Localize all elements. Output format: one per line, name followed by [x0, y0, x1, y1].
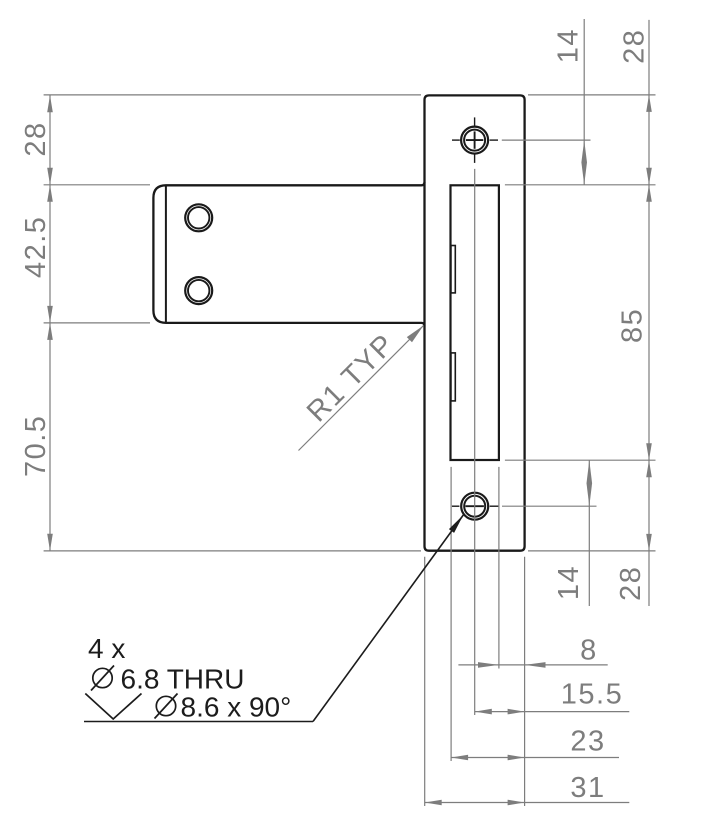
svg-text:42.5: 42.5	[20, 216, 52, 278]
svg-text:4 x: 4 x	[88, 633, 125, 664]
svg-text:28: 28	[20, 121, 52, 156]
svg-text:14: 14	[553, 565, 585, 600]
svg-text:14: 14	[552, 28, 584, 63]
svg-text:6.8 THRU: 6.8 THRU	[121, 664, 245, 695]
svg-text:31: 31	[570, 772, 605, 804]
svg-text:23: 23	[570, 726, 605, 758]
svg-text:85: 85	[617, 308, 649, 343]
svg-text:28: 28	[619, 29, 651, 64]
svg-text:28: 28	[615, 566, 647, 601]
svg-text:8: 8	[580, 634, 598, 666]
svg-text:70.5: 70.5	[20, 415, 52, 477]
svg-text:8.6 x 90°: 8.6 x 90°	[181, 692, 292, 723]
svg-text:15.5: 15.5	[561, 679, 623, 711]
